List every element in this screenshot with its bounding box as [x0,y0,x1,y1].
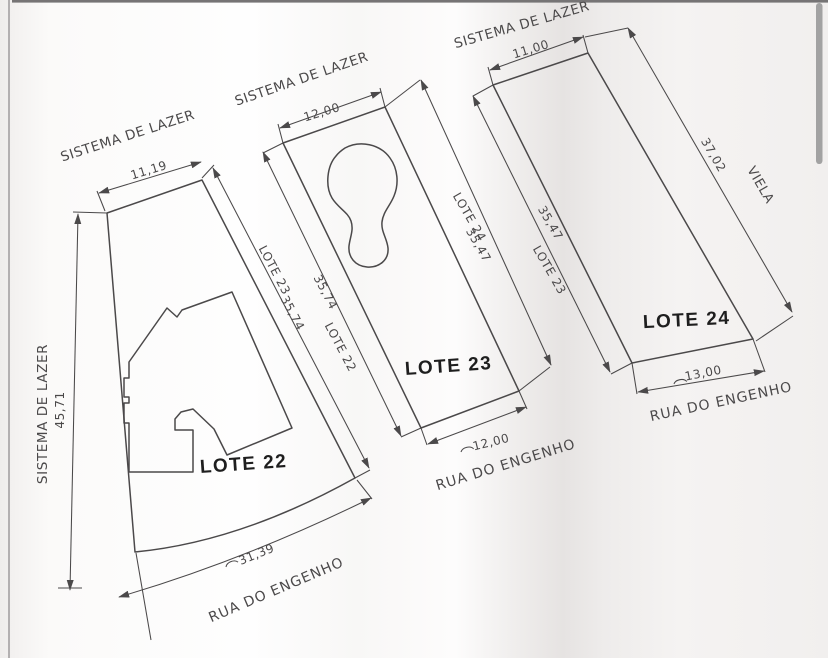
lot-22-left-area-label: SISTEMA DE LAZER [35,344,51,484]
scan-top-edge [12,0,828,3]
scrollbar-thumb[interactable] [816,3,823,164]
site-plan-drawing: SISTEMA DE LAZER 11,19 SISTEMA DE LAZER … [0,0,828,658]
scan-left-edge [8,0,10,658]
lot-22-left-dimension: 45,71 [53,391,67,428]
scanned-site-plan: SISTEMA DE LAZER 11,19 SISTEMA DE LAZER … [0,0,828,658]
